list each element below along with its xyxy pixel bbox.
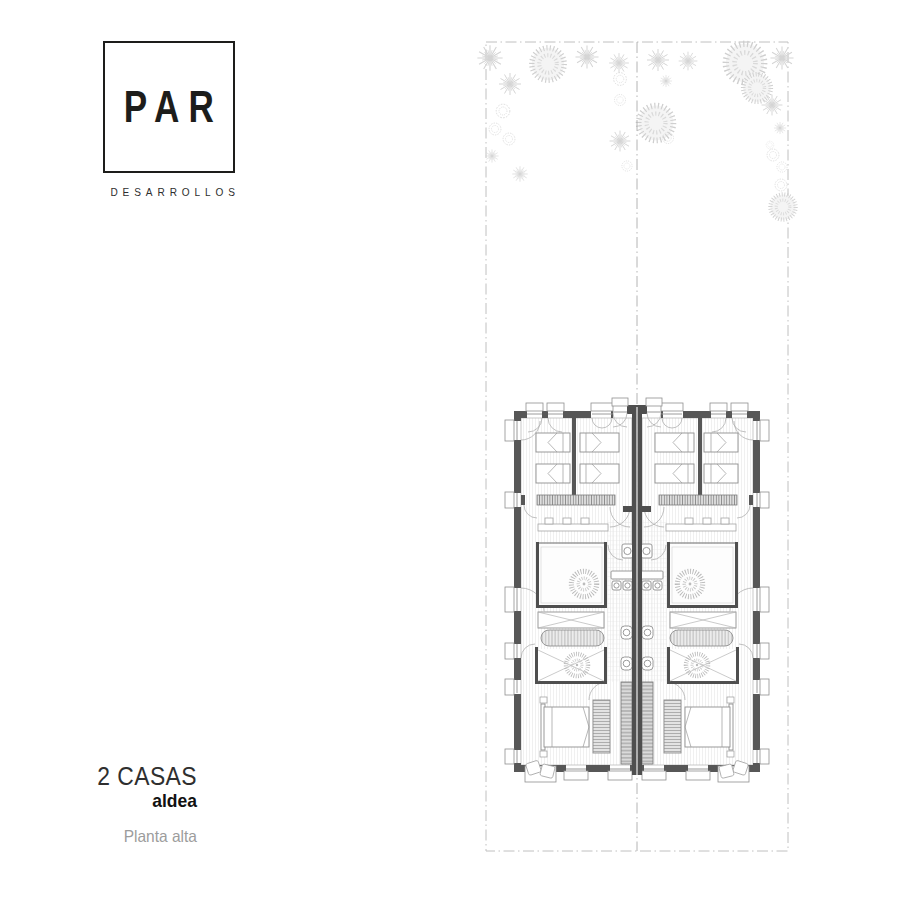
single-bed	[536, 433, 570, 452]
nightstand	[540, 697, 547, 703]
tree-icon	[532, 48, 564, 80]
window-frame	[505, 492, 514, 508]
window-frame	[505, 587, 514, 612]
stair-run	[541, 630, 604, 646]
window-frame	[505, 643, 514, 659]
lounge-chair	[540, 764, 556, 779]
tree-icon	[610, 131, 631, 152]
window-frame	[505, 679, 514, 695]
garden-vegetation	[477, 44, 795, 220]
shrub-icon	[503, 133, 515, 145]
window-frame	[505, 420, 514, 441]
tree-icon	[770, 46, 793, 69]
window-sill	[564, 771, 588, 780]
shrub-icon	[622, 161, 632, 171]
window-frame	[591, 403, 613, 411]
single-bed	[536, 464, 570, 483]
logo-box: PAR	[103, 41, 235, 173]
tree-icon	[639, 106, 674, 141]
floor-label: Planta alta	[65, 828, 197, 845]
shrub-icon	[767, 149, 779, 161]
tree-icon	[647, 49, 669, 71]
tree-icon	[512, 166, 527, 181]
window-frame	[505, 749, 514, 764]
void-opening-lower	[535, 647, 607, 684]
title-block: 2 CASAS aldea Planta alta	[57, 763, 197, 845]
window-frame	[547, 403, 564, 411]
poster-canvas: PAR DESARROLLOS 2 CASAS aldea Planta alt…	[0, 0, 900, 900]
house-unit-left	[505, 398, 637, 782]
window-frame	[612, 398, 628, 406]
tree-icon	[485, 149, 498, 162]
nightstand	[540, 751, 547, 757]
master-bed	[544, 707, 589, 747]
closet-millwork	[537, 495, 615, 505]
counter	[611, 571, 633, 579]
shrub-icon	[775, 179, 787, 191]
tree-icon	[499, 73, 521, 95]
tree-icon	[660, 75, 672, 87]
shrub-icon	[766, 141, 774, 149]
sink-basin	[624, 547, 631, 554]
logo-text: PAR	[115, 81, 224, 133]
window-sill	[608, 771, 632, 780]
void-opening	[538, 612, 604, 628]
tree-icon	[477, 45, 502, 70]
wardrobe	[593, 700, 610, 753]
tree-icon	[609, 53, 629, 73]
brand-logo: PAR DESARROLLOS	[103, 41, 235, 198]
tree-icon	[575, 45, 598, 68]
shrub-icon	[614, 94, 625, 105]
shrub-icon	[614, 73, 627, 86]
brand-subtitle: DESARROLLOS	[106, 186, 233, 198]
tree-icon	[774, 122, 786, 134]
tree-icon	[679, 52, 698, 71]
house-unit-right	[637, 398, 769, 782]
shrub-icon	[777, 162, 787, 172]
tree-icon	[770, 194, 795, 219]
project-title: 2 CASAS	[74, 763, 197, 790]
shrub-icon	[496, 104, 510, 118]
window-frame	[526, 403, 543, 411]
shrub-icon	[489, 123, 501, 135]
patio-courtyard	[536, 542, 607, 608]
project-variant: aldea	[68, 791, 197, 811]
main-staircase	[621, 682, 632, 764]
tree-icon	[743, 74, 771, 102]
